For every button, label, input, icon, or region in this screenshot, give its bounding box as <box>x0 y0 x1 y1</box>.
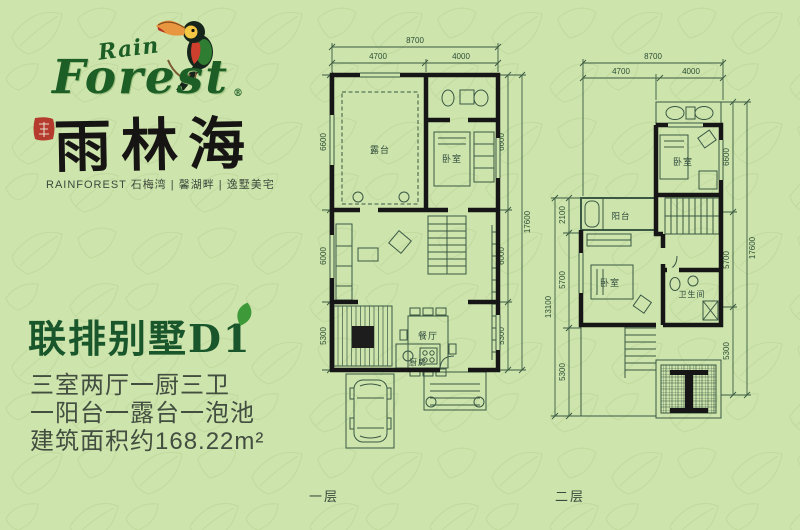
desc-line-features: 一阳台一露台一泡池 <box>30 400 310 428</box>
dim2-left-c: 5300 <box>558 363 567 381</box>
floor2-caption: 二层 <box>555 486 585 505</box>
dim2-top-a: 4700 <box>612 67 630 76</box>
brand-logo-block: Rain Forest ® 雨林海 RAINFOREST 石梅湾 | 馨湖畔 |… <box>0 0 300 210</box>
dim-right-total: 17600 <box>523 210 532 233</box>
dim2-right-b: 5700 <box>722 251 731 269</box>
room-label-balcony: 阳台 <box>611 211 630 221</box>
floor1-plan: 8700 4700 4000 6600 6000 5300 6600 6000 … <box>300 20 535 486</box>
dim-top-b: 4000 <box>452 52 470 61</box>
listing-info: 联排别墅D1 三室两厅一厨三卫 一阳台一露台一泡池 建筑面积约168.22m² <box>28 308 308 363</box>
unit-title-text: 联排别墅D1 <box>28 316 251 361</box>
dim2-right-total: 17600 <box>748 236 757 259</box>
room-label-kitchen: 厨房 <box>409 357 427 367</box>
forest-wordmark: Rain Forest ® <box>52 50 229 105</box>
dim2-left-a: 2100 <box>558 206 567 224</box>
dim2-top-total: 8700 <box>644 52 662 61</box>
floor1-caption: 一层 <box>309 486 339 505</box>
room-label-bathroom: 卫生间 <box>679 289 706 299</box>
dim-left-c: 5300 <box>319 327 328 345</box>
rainforest-flyer: Rain Forest ® 雨林海 RAINFOREST 石梅湾 | 馨湖畔 |… <box>0 0 800 530</box>
red-seal-stamp <box>32 116 56 142</box>
dim2-left-b: 5700 <box>558 271 567 289</box>
dim-top-total: 8700 <box>406 36 424 45</box>
room-label-terrace: 露台 <box>370 144 390 155</box>
dim2-left-total: 13100 <box>544 295 553 318</box>
unit-title: 联排别墅D1 <box>28 308 308 363</box>
desc-line-area: 建筑面积约168.22m² <box>30 428 310 456</box>
room-label-bedroom-top: 卧室 <box>673 156 693 167</box>
floor2-interior <box>581 102 721 418</box>
room-label-dining: 餐厅 <box>418 330 438 341</box>
floor2-dimension-labels: 8700 4700 4000 2100 5700 5300 13100 6600… <box>544 52 757 381</box>
dim-left-a: 6600 <box>319 133 328 151</box>
dim2-right-c: 5300 <box>722 342 731 360</box>
brand-name: 雨林海 <box>53 98 255 183</box>
dim-top-a: 4700 <box>369 52 387 61</box>
desc-line-rooms: 三室两厅一厨三卫 <box>30 372 310 400</box>
floor2-plan: 8700 4700 4000 2100 5700 5300 13100 6600… <box>543 38 798 486</box>
title-leaf-icon <box>232 300 254 328</box>
unit-description: 三室两厅一厨三卫 一阳台一露台一泡池 建筑面积约168.22m² <box>30 372 310 456</box>
dim2-top-b: 4000 <box>682 67 700 76</box>
brand-name-row: 雨林海 <box>28 100 288 178</box>
dim-left-b: 6000 <box>319 247 328 265</box>
floor1-interior <box>334 90 498 448</box>
room-label-bedroom: 卧室 <box>600 277 620 288</box>
room-label-bedroom: 卧室 <box>442 153 462 164</box>
brand-subtitle: RAINFOREST 石梅湾 | 馨湖畔 | 逸墅美宅 <box>46 176 275 192</box>
registered-mark: ® <box>233 88 243 99</box>
